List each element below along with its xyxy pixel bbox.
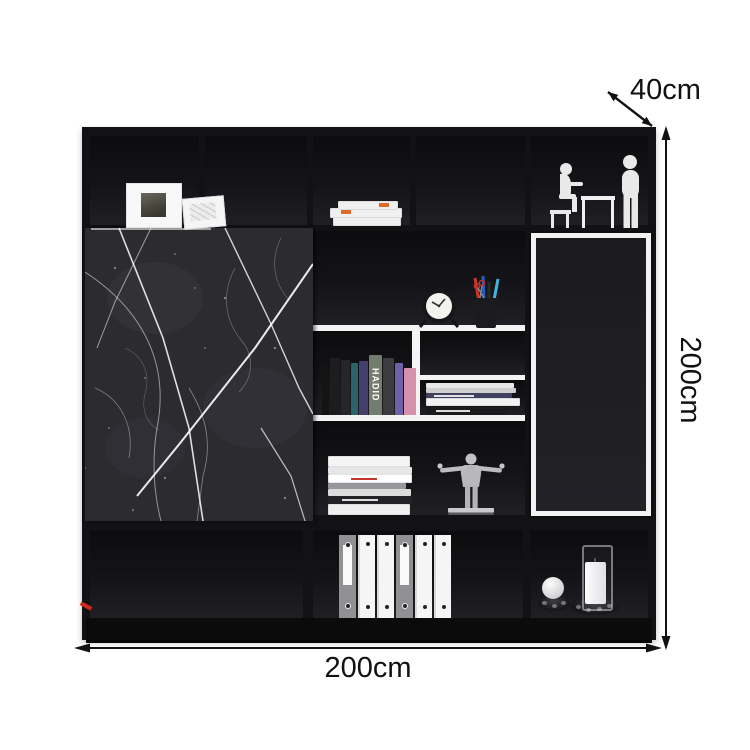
- binder-label: [400, 545, 409, 585]
- bottom-compartment-left: [90, 531, 303, 618]
- binder-ring-hole: [345, 542, 351, 548]
- ball-candle: [542, 577, 564, 599]
- display-door-panel: [536, 238, 646, 511]
- wreath-bead: [576, 605, 581, 609]
- depth-dimension-label: 40cm: [630, 74, 720, 107]
- book-spine: [383, 358, 394, 415]
- magazine: [328, 504, 410, 515]
- magazine: [426, 388, 516, 393]
- book-black: [328, 496, 412, 504]
- framed-sketch: [189, 202, 216, 221]
- file-binder: [415, 535, 432, 618]
- binder-ring-hole: [366, 605, 370, 609]
- book-title-mark: [342, 499, 378, 501]
- magazine-stack-small: [426, 383, 520, 415]
- product-image: HADID: [0, 0, 750, 750]
- book-row: HADID: [322, 331, 412, 415]
- book-title-mark: [436, 410, 470, 412]
- alarm-clock: [414, 276, 464, 328]
- magazine-title-mark: [351, 478, 377, 480]
- pillar-candle: [585, 562, 606, 604]
- book-spine-hadid: HADID: [369, 355, 382, 415]
- top-shelf-compartment-4: [416, 136, 525, 225]
- book-black: [426, 406, 506, 415]
- book-spine: [351, 363, 358, 415]
- binder-label: [343, 545, 352, 585]
- marble-door: [85, 228, 313, 521]
- binder-ring-hole: [442, 542, 446, 546]
- file-binder: [377, 535, 394, 618]
- magazine-stack-large: [328, 452, 412, 515]
- wreath-bead: [552, 604, 557, 608]
- book-spine: [404, 368, 416, 415]
- book-spine: [330, 358, 340, 415]
- book-spine: [395, 363, 403, 415]
- wreath-bead: [542, 601, 547, 605]
- picture-frame-large: [126, 183, 182, 228]
- width-dimension-label: 200cm: [298, 652, 438, 685]
- display-door: [531, 233, 651, 516]
- binder-ring-hole: [402, 542, 408, 548]
- book-spine: [322, 367, 329, 415]
- magazine-title-mark: [434, 395, 474, 397]
- magazine: [328, 489, 411, 496]
- magazine: [328, 467, 412, 474]
- marble-texture: [85, 228, 313, 521]
- middle-compartment-small-top: [420, 331, 525, 375]
- framed-photo: [141, 193, 166, 217]
- magazine: [426, 398, 520, 406]
- binder-ring-hole: [402, 603, 408, 609]
- figurines-desk-scene: [537, 150, 649, 228]
- wreath-bead: [561, 601, 566, 605]
- magazine: [328, 456, 410, 467]
- book-spine-label: [379, 203, 389, 207]
- binder-ring-hole: [423, 605, 427, 609]
- book-spine: [341, 360, 350, 415]
- file-binder: [434, 535, 451, 618]
- book-spine-label: [341, 210, 351, 214]
- book-spine-text: HADID: [369, 355, 382, 415]
- binder-ring-hole: [423, 542, 427, 546]
- binder-ring-hole: [385, 542, 389, 546]
- file-binder: [358, 535, 375, 618]
- stacked-book: [338, 201, 398, 210]
- binder-ring-hole: [345, 603, 351, 609]
- pen-holder: [468, 274, 504, 328]
- picture-frame-small: [182, 195, 227, 230]
- height-dimension-label: 200cm: [676, 335, 706, 425]
- file-binder: [339, 535, 356, 618]
- binder-ring-hole: [385, 605, 389, 609]
- magazine: [328, 474, 412, 483]
- human-sculpture: [432, 452, 510, 516]
- binder-ring-hole: [366, 542, 370, 546]
- binder-ring-hole: [442, 605, 446, 609]
- book-spine: [359, 361, 368, 415]
- file-binder: [396, 535, 413, 618]
